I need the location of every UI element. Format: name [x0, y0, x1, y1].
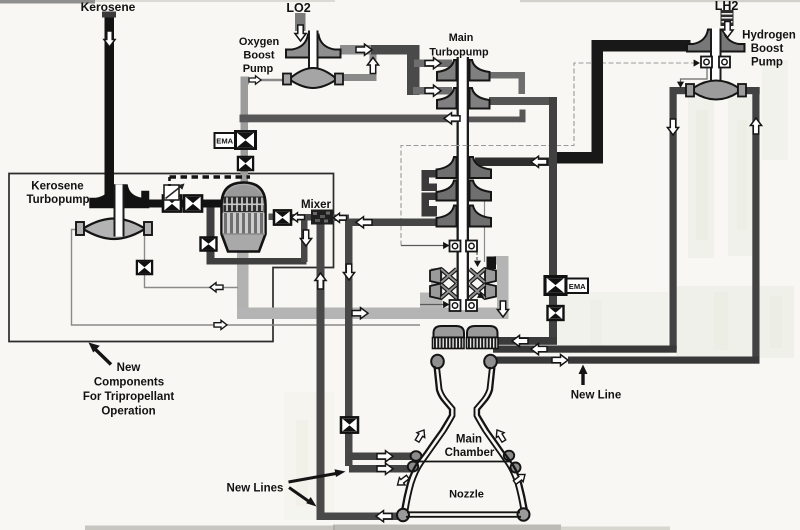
svg-text:Nozzle: Nozzle: [449, 489, 484, 501]
svg-text:Boost: Boost: [751, 43, 784, 55]
svg-text:New: New: [117, 362, 141, 374]
svg-text:New Line: New Line: [571, 390, 621, 402]
svg-text:Operation: Operation: [101, 406, 155, 418]
svg-text:Turbopump: Turbopump: [26, 194, 89, 206]
svg-text:Hydrogen: Hydrogen: [742, 30, 796, 42]
svg-text:Boost: Boost: [243, 50, 275, 62]
svg-text:Turbopump: Turbopump: [429, 47, 489, 59]
svg-text:New Lines: New Lines: [227, 483, 284, 495]
svg-text:Kerosene: Kerosene: [81, 0, 136, 14]
svg-text:LO2: LO2: [286, 1, 310, 15]
svg-text:Main: Main: [456, 434, 482, 446]
svg-text:For Tripropellant: For Tripropellant: [83, 391, 175, 403]
svg-text:LH2: LH2: [715, 0, 739, 13]
svg-text:EMA: EMA: [569, 282, 586, 291]
svg-text:Main: Main: [449, 32, 474, 44]
svg-text:EMA: EMA: [216, 137, 233, 146]
svg-text:Components: Components: [94, 377, 164, 389]
svg-text:Pump: Pump: [751, 57, 783, 69]
svg-text:Oxygen: Oxygen: [239, 36, 280, 48]
svg-text:Pump: Pump: [243, 63, 274, 75]
svg-text:Mixer: Mixer: [301, 199, 332, 211]
svg-text:Kerosene: Kerosene: [31, 181, 83, 193]
svg-text:Chamber: Chamber: [445, 447, 495, 459]
